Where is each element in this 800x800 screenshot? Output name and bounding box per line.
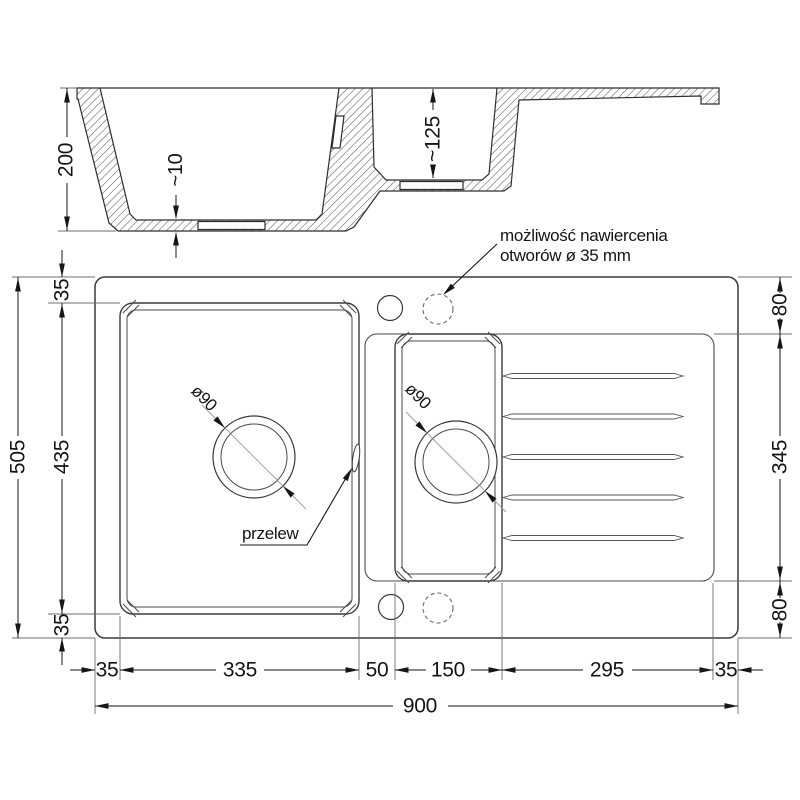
main-bowl: ø90 <box>120 300 361 617</box>
dim-50-label: 50 <box>366 659 389 682</box>
right-dim-column: 80 345 80 <box>769 277 792 638</box>
arrow-up <box>173 232 179 246</box>
total-width-dim: 900 <box>95 695 738 718</box>
plan-view: ø90 ø90 <box>7 226 793 718</box>
section-small-bowl-depth-label: ~125 <box>422 116 445 162</box>
arrow-up <box>430 89 436 103</box>
second-bowl: ø90 <box>395 332 506 583</box>
total-height-label: 505 <box>7 440 30 474</box>
dim-left-35-bottom-label: 35 <box>51 614 74 637</box>
tap-hole <box>378 296 403 321</box>
arrow-down <box>173 206 179 220</box>
dim-35-right-label: 35 <box>715 659 738 682</box>
dim-left-435-label: 435 <box>51 440 74 474</box>
dim-right-80-top-label: 80 <box>769 294 792 317</box>
groove <box>503 414 683 419</box>
bottom-dim-row: 35 335 50 150 295 35 <box>70 659 763 682</box>
arrow-down <box>430 165 436 179</box>
drill-note-line1: możliwość nawiercenia <box>500 226 668 245</box>
section-bottom-thickness-label: ~10 <box>165 153 187 186</box>
dim-35-left-label: 35 <box>96 659 119 682</box>
drill-note-line2: otworów ø 35 mm <box>500 246 631 265</box>
dim-295-label: 295 <box>590 659 624 682</box>
dim-right-345-label: 345 <box>769 440 792 474</box>
groove <box>503 536 683 541</box>
groove <box>503 455 683 460</box>
left-dim-column: 505 35 435 35 <box>7 250 74 665</box>
dim-150-label: 150 <box>431 659 465 682</box>
groove <box>503 374 683 379</box>
dim-right-80-bottom-label: 80 <box>769 599 792 622</box>
section-depth-label: 200 <box>55 143 78 177</box>
groove <box>503 495 683 500</box>
dim-left-35-top-label: 35 <box>51 279 74 302</box>
total-width-label: 900 <box>403 695 437 718</box>
overflow-label: przelew <box>242 524 300 543</box>
arrow-up <box>64 89 70 103</box>
arrow-down <box>64 217 70 231</box>
tap-hole <box>379 595 404 620</box>
dim-335-label: 335 <box>223 659 257 682</box>
sink-technical-drawing: 200 ~10 ~125 <box>0 0 800 800</box>
